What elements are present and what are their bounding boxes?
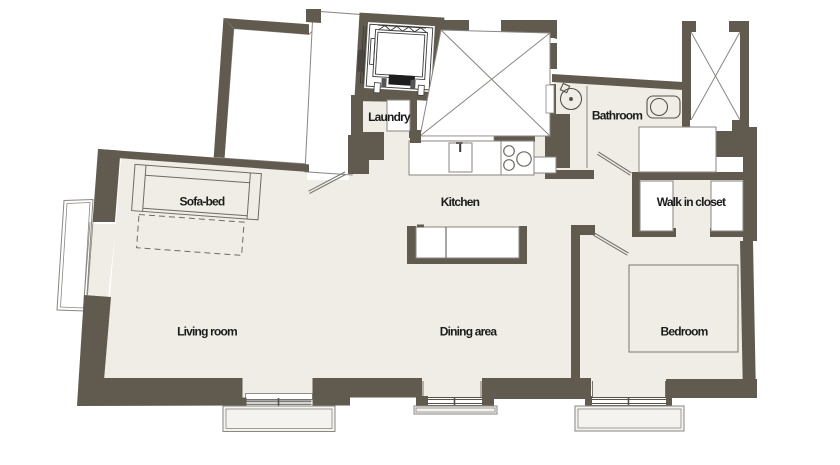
svg-text:Bathroom: Bathroom — [592, 109, 642, 123]
svg-text:Laundry: Laundry — [368, 110, 411, 124]
svg-text:Kitchen: Kitchen — [441, 195, 480, 209]
svg-text:Dining area: Dining area — [440, 325, 498, 339]
svg-text:Walk in closet: Walk in closet — [657, 195, 726, 209]
svg-text:Sofa-bed: Sofa-bed — [180, 195, 225, 209]
svg-text:Bedroom: Bedroom — [660, 325, 707, 339]
svg-text:Living room: Living room — [177, 325, 237, 339]
